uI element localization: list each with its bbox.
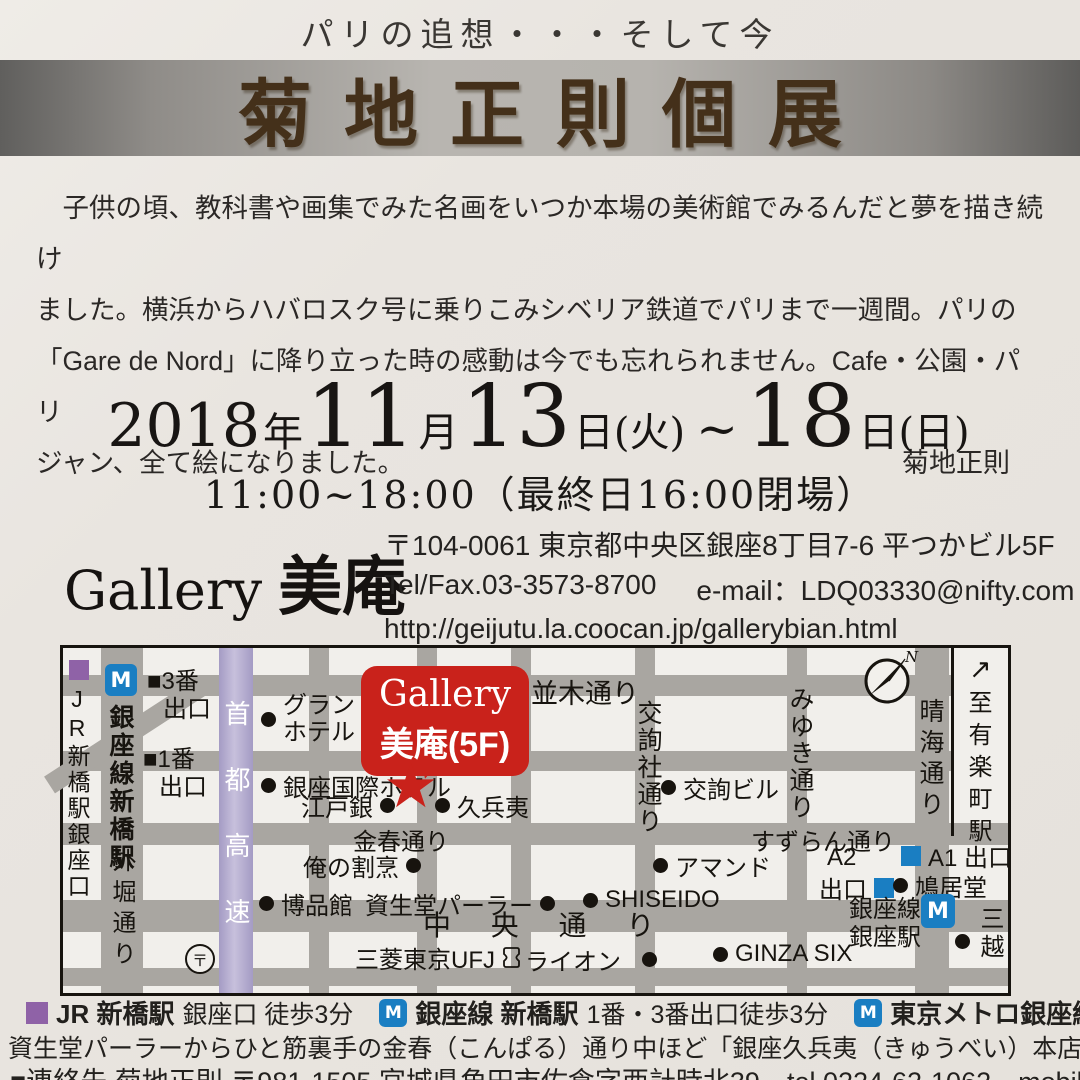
tokyo-metro-icon: M [854,999,882,1027]
poi-dot [713,947,728,962]
metro-exit-icon [874,878,894,898]
gallery-contact-row: Tel/Fax.03-3573-8700 e-mail：LDQ03330@nif… [384,569,1074,609]
poi-dot [406,858,421,873]
poi-hakuhinkan: 博品館 [259,886,353,921]
tokyo-metro-icon: M [921,894,955,928]
gallery-star-marker: ★ [383,756,439,818]
exhibition-subtitle: パリの追想・・・そして今 [0,8,1080,56]
poi-lion: ライオン [525,942,657,977]
poi-dot [259,896,274,911]
station-ginza-line-shimbashi: 銀座線新橋駅 [107,704,132,872]
poi-kojun-building: 交詢ビル [661,770,779,805]
poi-dot [261,712,276,727]
exhibition-title: 菊地正則個展 [206,55,874,162]
road-label-shuto-expressway: 首都高速 [223,700,249,964]
access-map: JR新橋駅銀座口 M 銀座線新橋駅 ■3番 出口 ■1番 出口 首都高速 外堀通… [60,645,1011,996]
metro-exit-icon [901,846,921,866]
exhibition-dates: 2018 年 11 月 13 日(火) ~ 18 日(日) [0,374,1080,461]
poi-dot [642,952,657,967]
road-label-sotobori: 外堀通り [109,848,133,972]
exit-1-label: ■1番 出口 [143,746,207,802]
bank-icon [502,947,521,968]
jr-line-icon [26,1002,48,1024]
station-jr-shimbashi: JR新橋駅銀座口 [65,686,88,900]
gallery-url: http://geijutu.la.coocan.jp/gallerybian.… [384,613,898,645]
exit-3-label: ■3番 出口 [147,668,211,724]
date-month: 11 [306,374,415,460]
date-year: 2018 [107,391,260,461]
post-office-icon: 〒 [185,944,215,974]
map-legend: JR 新橋駅 銀座口 徒歩3分 M 銀座線 新橋駅 1番・3番出口徒歩3分 M … [26,994,1074,1031]
road-label-miyuki: みゆき通り [787,686,812,821]
date-year-unit: 年 [260,400,306,458]
exit-a2-line1: A2 [827,844,856,872]
tokyo-metro-icon: M [105,664,137,696]
flyer-page: パリの追想・・・そして今 菊地正則個展 子供の頃、教科書や画集でみた名画をいつか… [0,0,1080,1080]
poi-kyubei: 久兵夷 [435,788,529,823]
legend-tokyo-metro: M 東京メトロ銀座線 A1・A2出口徒歩5分 [854,994,1080,1031]
legend-jr: JR 新橋駅 銀座口 徒歩3分 [26,994,353,1031]
intro-line: ました。横浜からハバロスク号に乗りこみシベリア鉄道でパリまで一週間。パリの [36,285,1046,336]
road-label-chuo: 中 央 通 り [423,904,670,944]
contact-line: ■連絡先 菊地正則 〒981-1505 宮城県角田市佐倉字西計時北39 tel.… [10,1060,1080,1080]
compass-icon: N [861,650,921,708]
gallery-address: 〒104-0061 東京都中央区銀座8丁目7-6 平つかビル5F [384,524,1055,564]
poi-edogin: 江戸銀 [301,788,395,823]
gallery-name: Gallery 美庵 [64,536,406,628]
date-day-start-unit: 日(火) [571,400,688,458]
to-yurakucho-arrow: ↗ [969,654,992,685]
date-day-end-unit: 日(日) [855,400,972,458]
gallery-name-en: Gallery [64,559,262,622]
poi-dot [893,878,908,893]
road-label-kojunsha: 交詢社通り [635,700,660,835]
date-month-unit: 月 [415,400,461,458]
road-label-harumi: 晴海通り [917,698,942,822]
poi-mitsukoshi: 三越 [977,906,1001,962]
poi-mitsubishi-ufj: 三菱東京UFJ [355,940,521,975]
svg-text:N: N [904,650,919,666]
intro-line: 子供の頃、教科書や画集でみた名画をいつか本場の美術館でみるんだと夢を描き続け [36,183,1046,285]
poi-dot [261,778,276,793]
callout-line1: Gallery [365,674,525,715]
gallery-telfax: Tel/Fax.03-3573-8700 [384,569,656,609]
date-tilde: ~ [688,400,746,458]
road-label-namiki: 並木通り [531,672,639,711]
poi-ginza-six: GINZA SIX [713,940,852,968]
poi-dot [955,934,970,949]
poi-orenokappo: 俺の割烹 [303,848,421,883]
map-right-divider [951,648,954,836]
gallery-email: e-mail：LDQ03330@nifty.com [696,569,1074,609]
road-label-suzuran: すずらん通り [751,822,895,857]
station-ginza-label: 銀座線 銀座駅 [849,896,921,952]
tokyo-metro-icon: M [379,999,407,1027]
poi-dot [661,780,676,795]
legend-ginza-line: M 銀座線 新橋駅 1番・3番出口徒歩3分 [379,994,828,1031]
date-day-end: 18 [746,374,855,460]
to-yurakucho-label: 至有楽町駅 [965,690,989,850]
date-day-start: 13 [461,374,570,460]
opening-hours: 11:00~18:00（最終日16:00閉場） [0,464,1080,519]
poi-dot [653,858,668,873]
title-band: 菊地正則個展 [0,60,1080,156]
jr-line-icon [69,660,89,680]
